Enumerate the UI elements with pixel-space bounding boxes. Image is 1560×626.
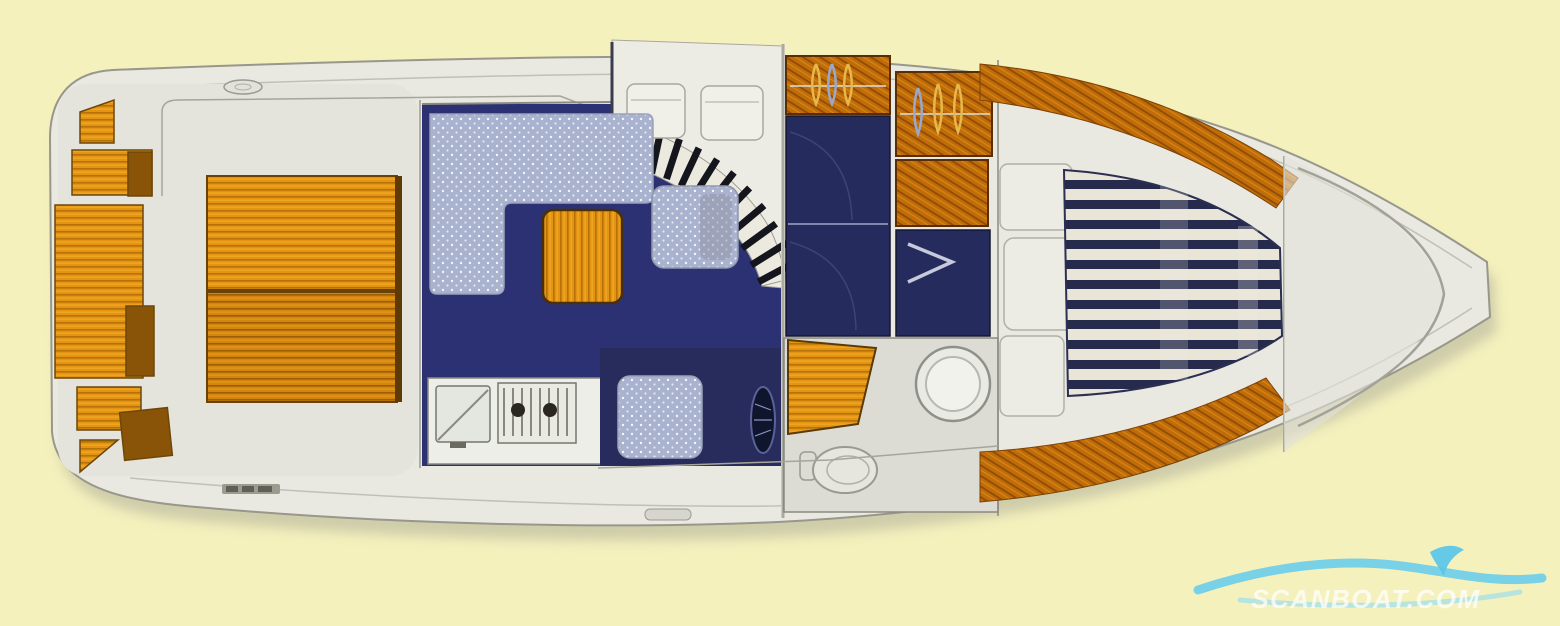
salon-armchair [652,186,738,268]
head-sink [916,347,990,421]
mid-cabin-cabinet [896,160,988,226]
helm-seat [618,376,702,458]
salon-table [543,210,622,303]
mid-cabin-entry [896,230,990,336]
head-compartment [784,338,998,512]
wardrobe-port [786,56,890,114]
mid-cabin-berth [786,116,890,336]
watermark-text: SCANBOAT.COM [1251,584,1480,614]
deck-seat-right [701,86,763,140]
cleat-bottom [645,509,691,520]
galley [428,378,606,464]
steering-wheel [751,387,775,453]
cleat [224,80,262,94]
galley-sink [436,386,490,448]
galley-stove [498,383,576,443]
scanned-boat-layout-image: SCANBOAT.COM [0,0,1560,626]
cockpit-teak-deck [207,176,402,402]
wardrobe-starboard [896,72,992,156]
